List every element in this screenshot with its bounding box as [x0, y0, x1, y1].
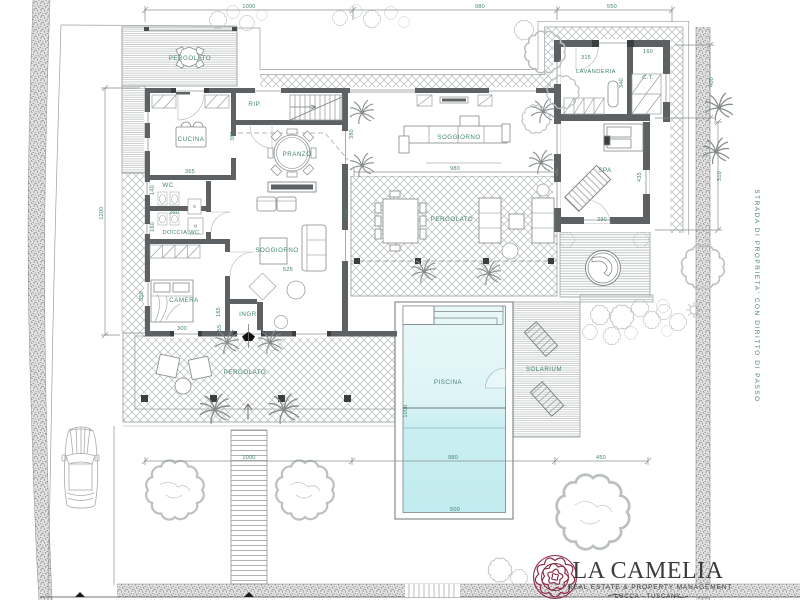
- svg-text:SPA: SPA: [598, 167, 612, 174]
- svg-text:SOLARIUM: SOLARIUM: [526, 367, 562, 373]
- svg-text:REAL ESTATE & PROPERTY MANAGEM: REAL ESTATE & PROPERTY MANAGEMENT: [568, 584, 732, 591]
- svg-text:PERGOLATO: PERGOLATO: [224, 369, 266, 376]
- svg-text:160: 160: [150, 222, 156, 232]
- svg-text:980: 980: [475, 4, 485, 10]
- svg-text:SOGGIORNO: SOGGIORNO: [255, 247, 298, 254]
- svg-text:WC: WC: [162, 182, 173, 189]
- svg-text:55: 55: [217, 325, 223, 332]
- svg-text:C.T.: C.T.: [642, 75, 654, 81]
- svg-text:340: 340: [619, 78, 625, 88]
- svg-text:350: 350: [139, 291, 145, 301]
- svg-text:CAMERA: CAMERA: [169, 297, 199, 304]
- svg-text:1000: 1000: [403, 404, 409, 417]
- svg-text:1000: 1000: [242, 455, 255, 461]
- svg-text:980: 980: [450, 166, 460, 172]
- svg-text:400: 400: [709, 77, 715, 87]
- svg-text:PERGOLATO: PERGOLATO: [431, 216, 473, 223]
- svg-text:365: 365: [185, 169, 195, 175]
- svg-text:315: 315: [581, 55, 591, 61]
- svg-text:STRADA DI PROPRIETA' CON DIRIT: STRADA DI PROPRIETA' CON DIRITTO DI PASS…: [753, 189, 760, 402]
- svg-text:LAVANDERIA: LAVANDERIA: [576, 69, 616, 75]
- svg-text:380: 380: [349, 129, 355, 139]
- svg-text:500: 500: [450, 507, 460, 513]
- svg-text:LUCCA - TUSCANY: LUCCA - TUSCANY: [615, 594, 681, 600]
- svg-text:PISCINA: PISCINA: [434, 379, 463, 386]
- svg-text:365: 365: [230, 131, 236, 141]
- svg-text:140: 140: [150, 185, 156, 195]
- svg-text:525: 525: [283, 267, 293, 273]
- svg-text:PERGOLATO: PERGOLATO: [169, 55, 211, 62]
- svg-text:160: 160: [643, 49, 653, 55]
- svg-text:DOCCIA WC: DOCCIA WC: [162, 230, 199, 236]
- svg-text:SOGGIORNO: SOGGIORNO: [437, 134, 480, 141]
- svg-text:CUCINA: CUCINA: [178, 136, 205, 143]
- svg-text:LA CAMELIA: LA CAMELIA: [573, 558, 724, 584]
- svg-text:510: 510: [717, 171, 723, 181]
- svg-text:435: 435: [637, 172, 643, 182]
- svg-text:INGR.: INGR.: [239, 311, 259, 318]
- svg-text:550: 550: [607, 4, 617, 10]
- svg-text:390: 390: [597, 217, 607, 223]
- svg-text:RIP.: RIP.: [248, 101, 261, 108]
- svg-text:165: 165: [216, 307, 222, 317]
- svg-text:450: 450: [596, 455, 606, 461]
- svg-text:260: 260: [169, 210, 179, 216]
- svg-text:1200: 1200: [99, 206, 105, 219]
- svg-text:1000: 1000: [242, 4, 255, 10]
- svg-text:980: 980: [448, 455, 458, 461]
- svg-text:300: 300: [177, 326, 187, 332]
- svg-text:140: 140: [343, 208, 349, 218]
- svg-text:PRANZO: PRANZO: [283, 151, 312, 158]
